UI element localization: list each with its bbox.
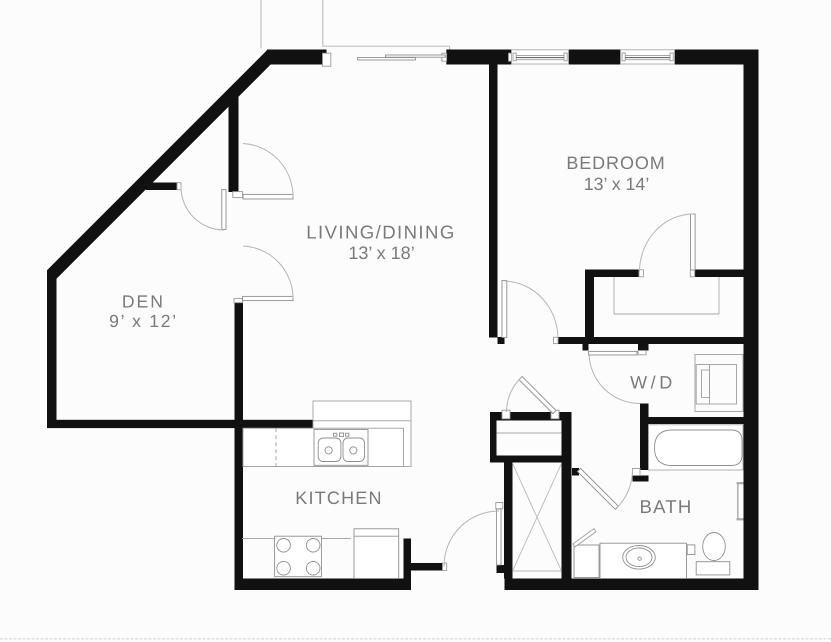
svg-text:LIVING/DINING: LIVING/DINING — [306, 222, 455, 243]
svg-text:KITCHEN: KITCHEN — [295, 488, 382, 508]
svg-text:9’ x 12’: 9’ x 12’ — [109, 311, 178, 331]
svg-text:13’ x 18’: 13’ x 18’ — [348, 243, 414, 263]
svg-text:DEN: DEN — [122, 292, 165, 312]
svg-text:W/D: W/D — [630, 373, 676, 393]
svg-text:BEDROOM: BEDROOM — [566, 153, 665, 173]
svg-text:BATH: BATH — [639, 496, 692, 517]
svg-text:13’ x 14’: 13’ x 14’ — [584, 174, 650, 194]
